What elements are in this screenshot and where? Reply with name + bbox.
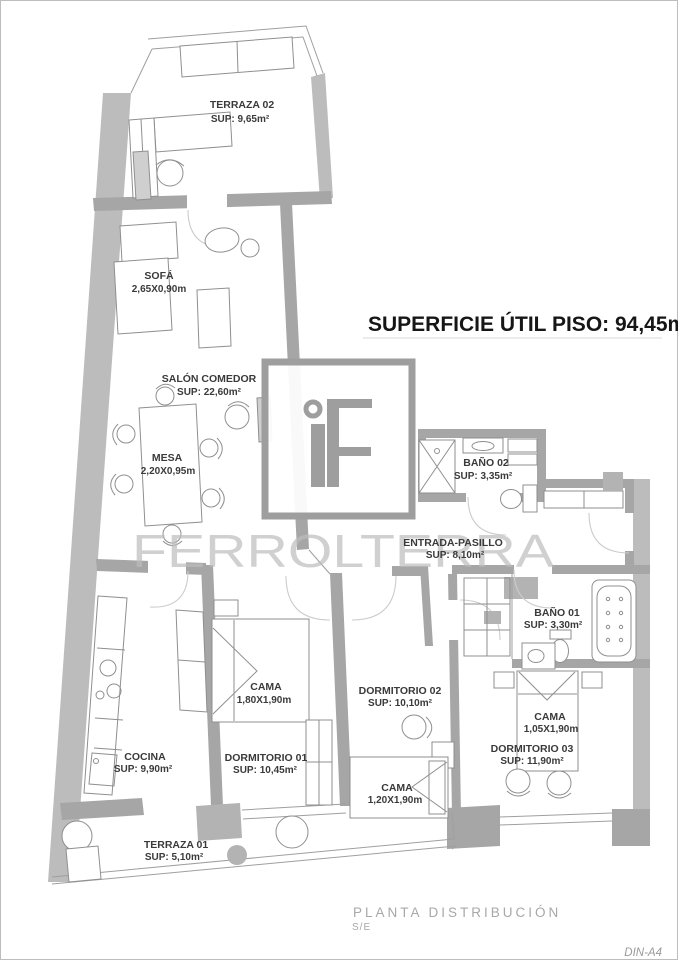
label-dorm02-cama: CAMA [381, 782, 413, 794]
armchair [225, 405, 249, 429]
dorm03-chair [547, 771, 571, 795]
label-dorm01-name: DORMITORIO 01 [225, 752, 308, 764]
wall-dorm01-dorm02 [330, 573, 352, 806]
door-arc-dorm02 [352, 576, 396, 620]
label-cocina-name: COCINA [124, 751, 166, 763]
label-terraza01-sup: SUP: 5,10m² [145, 852, 204, 863]
label-dorm02-sup: SUP: 10,10m² [368, 698, 433, 709]
terraza01-planter-round [276, 816, 308, 848]
door-gap-terrace [187, 189, 227, 213]
bano01-sink [522, 643, 555, 669]
toilet-tank [523, 485, 537, 512]
wall-hall-down-left [420, 566, 433, 646]
toilet-bowl [501, 490, 522, 509]
wall-bottom-block-left [447, 805, 500, 849]
label-dorm03-sup: SUP: 11,90m² [500, 756, 564, 767]
dining-chair [200, 439, 218, 457]
label-sofa-dim: 2,65X0,90m [132, 284, 187, 295]
label-bano02-sup: SUP: 3,35m² [454, 471, 513, 482]
entry-pillar [603, 472, 623, 491]
dining-chair [156, 387, 174, 405]
logo-f-stem [327, 399, 339, 487]
label-dorm02-cama-dim: 1,20X1,90m [368, 795, 423, 806]
logo-i-stem [311, 424, 325, 487]
footer-sheet-size: DIN-A4 [624, 947, 662, 959]
label-dorm01-cama: CAMA [250, 681, 282, 693]
label-dorm03-cama: CAMA [534, 711, 566, 723]
label-entrada-sup: SUP: 8,10m² [426, 550, 485, 561]
logo-f-top [327, 399, 372, 408]
toilet-tank [550, 630, 571, 639]
label-dorm02-name: DORMITORIO 02 [359, 685, 442, 697]
bano02-cabinet [508, 439, 537, 452]
label-dorm03-cama-dim: 1,05X1,90m [524, 724, 579, 735]
label-salon-name: SALÓN COMEDOR [162, 372, 257, 385]
terrace-chair [157, 160, 183, 186]
floor-plan-sheet: FERROLTERRA TERRAZA 02 SUP: 9,65m² SOFÁ … [0, 0, 678, 960]
bano02-cabinet [508, 454, 537, 465]
label-salon-sup: SUP: 22,60m² [177, 387, 242, 398]
entrada-furniture [544, 472, 623, 508]
label-terraza02-sup: SUP: 9,65m² [211, 114, 270, 125]
label-dorm01-sup: SUP: 10,45m² [233, 765, 298, 776]
wall-bano02-bottom-left [418, 493, 466, 502]
sofa-seat-1 [120, 222, 178, 262]
dorm03-window [500, 813, 612, 825]
rug [197, 288, 231, 348]
terrace-planter [133, 151, 151, 200]
dorm03-chair [506, 769, 530, 793]
desk-chair [402, 715, 426, 739]
dining-table [139, 404, 202, 526]
chaise [203, 226, 240, 254]
label-mesa-dim: 2,20X0,95m [141, 466, 196, 477]
door-arc-entry [589, 513, 629, 553]
footer: PLANTA DISTRIBUCIÓN S/E DIN-A4 [352, 905, 662, 959]
wall-bano02-top [418, 429, 546, 438]
terrace-right-wall [311, 73, 333, 200]
terraza01-column [227, 845, 247, 865]
terraza01-railing [52, 812, 456, 884]
watermark-brand-text: FERROLTERRA [132, 525, 554, 577]
desk-chair-back [426, 717, 432, 738]
page-title: SUPERFICIE ÚTIL PISO: 94,45m² [368, 312, 678, 336]
label-bano01-sup: SUP: 3,30m² [524, 620, 583, 631]
side-table [241, 239, 259, 257]
logo-f-mid [339, 447, 371, 456]
wall-dorm01-terraza01-block [196, 803, 242, 841]
label-cocina-sup: SUP: 9,90m² [114, 764, 173, 775]
bathtub [592, 580, 636, 662]
terrace02-edge-left [131, 49, 152, 93]
dorm03-nightstand [494, 672, 514, 688]
dining-chair [202, 489, 220, 507]
wall-entry-upper [625, 488, 634, 513]
label-dorm03-name: DORMITORIO 03 [491, 743, 574, 755]
label-dorm01-cama-dim: 1,80X1,90m [237, 695, 292, 706]
footer-plan-title: PLANTA DISTRIBUCIÓN [353, 905, 561, 920]
terraza01-planter-square [66, 846, 101, 882]
dorm01-bed [212, 619, 309, 722]
door-gap-dorm03 [444, 600, 464, 640]
label-bano02-name: BAÑO 02 [463, 456, 509, 469]
label-terraza01-name: TERRAZA 01 [144, 839, 209, 851]
label-mesa-name: MESA [152, 452, 183, 464]
dorm01-nightstand [214, 600, 238, 616]
door-arc-dorm01 [286, 576, 330, 620]
wall-bottom-block-right [612, 809, 650, 846]
label-entrada-name: ENTRADA-PASILLO [403, 537, 503, 549]
title-block: SUPERFICIE ÚTIL PISO: 94,45m² [363, 312, 678, 338]
label-terraza02-name: TERRAZA 02 [210, 99, 275, 111]
dining-chair [117, 425, 135, 443]
label-bano01-name: BAÑO 01 [534, 606, 580, 619]
label-sofa-name: SOFÁ [144, 269, 174, 282]
footer-scale: S/E [352, 922, 371, 933]
wardrobe-grid-lines [464, 578, 510, 656]
dining-chair [115, 475, 133, 493]
dorm03-nightstand [582, 672, 602, 688]
